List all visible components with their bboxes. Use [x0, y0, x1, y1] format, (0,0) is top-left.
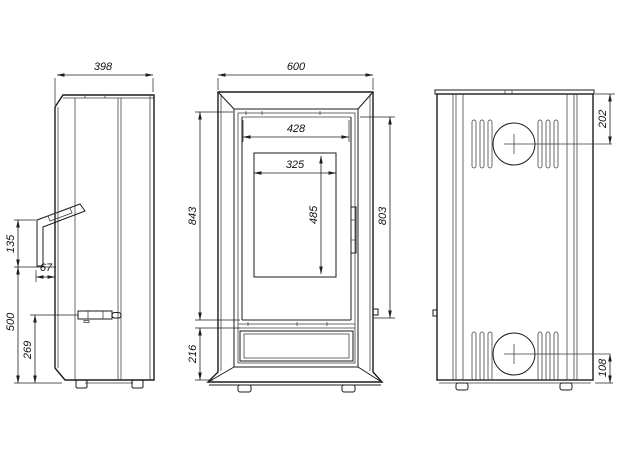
dim-plinth-height: 216 [187, 328, 240, 380]
vent-slot [538, 332, 542, 380]
door-frame [238, 113, 355, 363]
dim-label-handle-height: 500 [5, 312, 17, 331]
dim-label-handle-length: 135 [5, 234, 17, 253]
vent-slots-bottom [472, 332, 558, 380]
dim-label-plinth-height: 216 [187, 344, 199, 364]
dim-label-body-height: 843 [187, 206, 199, 225]
dim-glass-width: 325 [254, 156, 336, 178]
dim-inlet-offset: 108 [595, 354, 613, 383]
dim-label-depth: 398 [94, 61, 113, 73]
dim-label-glass-height: 485 [308, 205, 320, 224]
door-glass [254, 153, 336, 277]
side-body-outline [55, 95, 154, 383]
front-view: 600 428 325 485 843 [187, 61, 395, 392]
front-foot-right [342, 385, 355, 392]
dim-door-opening-width: 428 [243, 120, 349, 142]
bevel-top-right [358, 92, 373, 109]
vent-slot [546, 332, 550, 380]
dim-label-door-opening-width: 428 [287, 123, 306, 135]
dim-handle-height: 500 [5, 267, 62, 383]
door-handle-bracket [37, 204, 85, 266]
vent-slot [472, 120, 476, 168]
rear-view: 202 108 [433, 90, 615, 390]
dim-handle-offset: 67 [36, 262, 55, 282]
air-control-lever [78, 311, 121, 323]
rear-foot-right [560, 383, 572, 390]
stove-three-view-drawing: 398 135 67 500 269 [0, 0, 624, 460]
bevel-bottom-right [358, 367, 380, 381]
dim-label-door-height: 803 [377, 206, 389, 225]
dim-handle-length: 135 [5, 220, 56, 267]
dim-label-lever-height: 269 [22, 341, 34, 360]
vent-slot [488, 332, 492, 380]
side-foot-rear [132, 380, 143, 388]
vent-slot [472, 332, 476, 380]
side-view: 398 135 67 500 269 [5, 61, 154, 388]
dim-label-width: 600 [287, 61, 306, 73]
vent-slot [488, 120, 492, 168]
lever-mark [84, 321, 89, 323]
lever-tip [112, 313, 121, 319]
flue-outlet [493, 123, 612, 165]
handle-tab-front [373, 309, 378, 315]
side-foot-front [76, 380, 87, 388]
vent-slot [480, 332, 484, 380]
vent-slot [480, 120, 484, 168]
dim-label-glass-width: 325 [286, 159, 305, 171]
dim-label-inlet-offset: 108 [597, 358, 609, 377]
front-foot-left [238, 385, 251, 392]
plinth-panel [240, 331, 353, 361]
dim-body-height: 843 [187, 112, 240, 320]
dim-width: 600 [218, 61, 373, 90]
vent-slot [554, 332, 558, 380]
technical-drawing-canvas: 398 135 67 500 269 [0, 0, 624, 460]
dim-glass-height: 485 [308, 156, 321, 274]
rear-body-outline [433, 90, 594, 383]
dim-label-flue-offset: 202 [597, 110, 609, 129]
dim-lever-height: 269 [22, 315, 78, 383]
dim-door-height: 803 [360, 117, 395, 318]
bevel-top-left [218, 92, 234, 109]
bevel-bottom-left [210, 367, 234, 381]
dim-flue-offset: 202 [595, 94, 615, 144]
dim-label-handle-offset: 67 [40, 262, 53, 274]
rear-foot-left [456, 383, 468, 390]
handle-slot [48, 208, 72, 221]
dim-depth: 398 [55, 61, 153, 105]
